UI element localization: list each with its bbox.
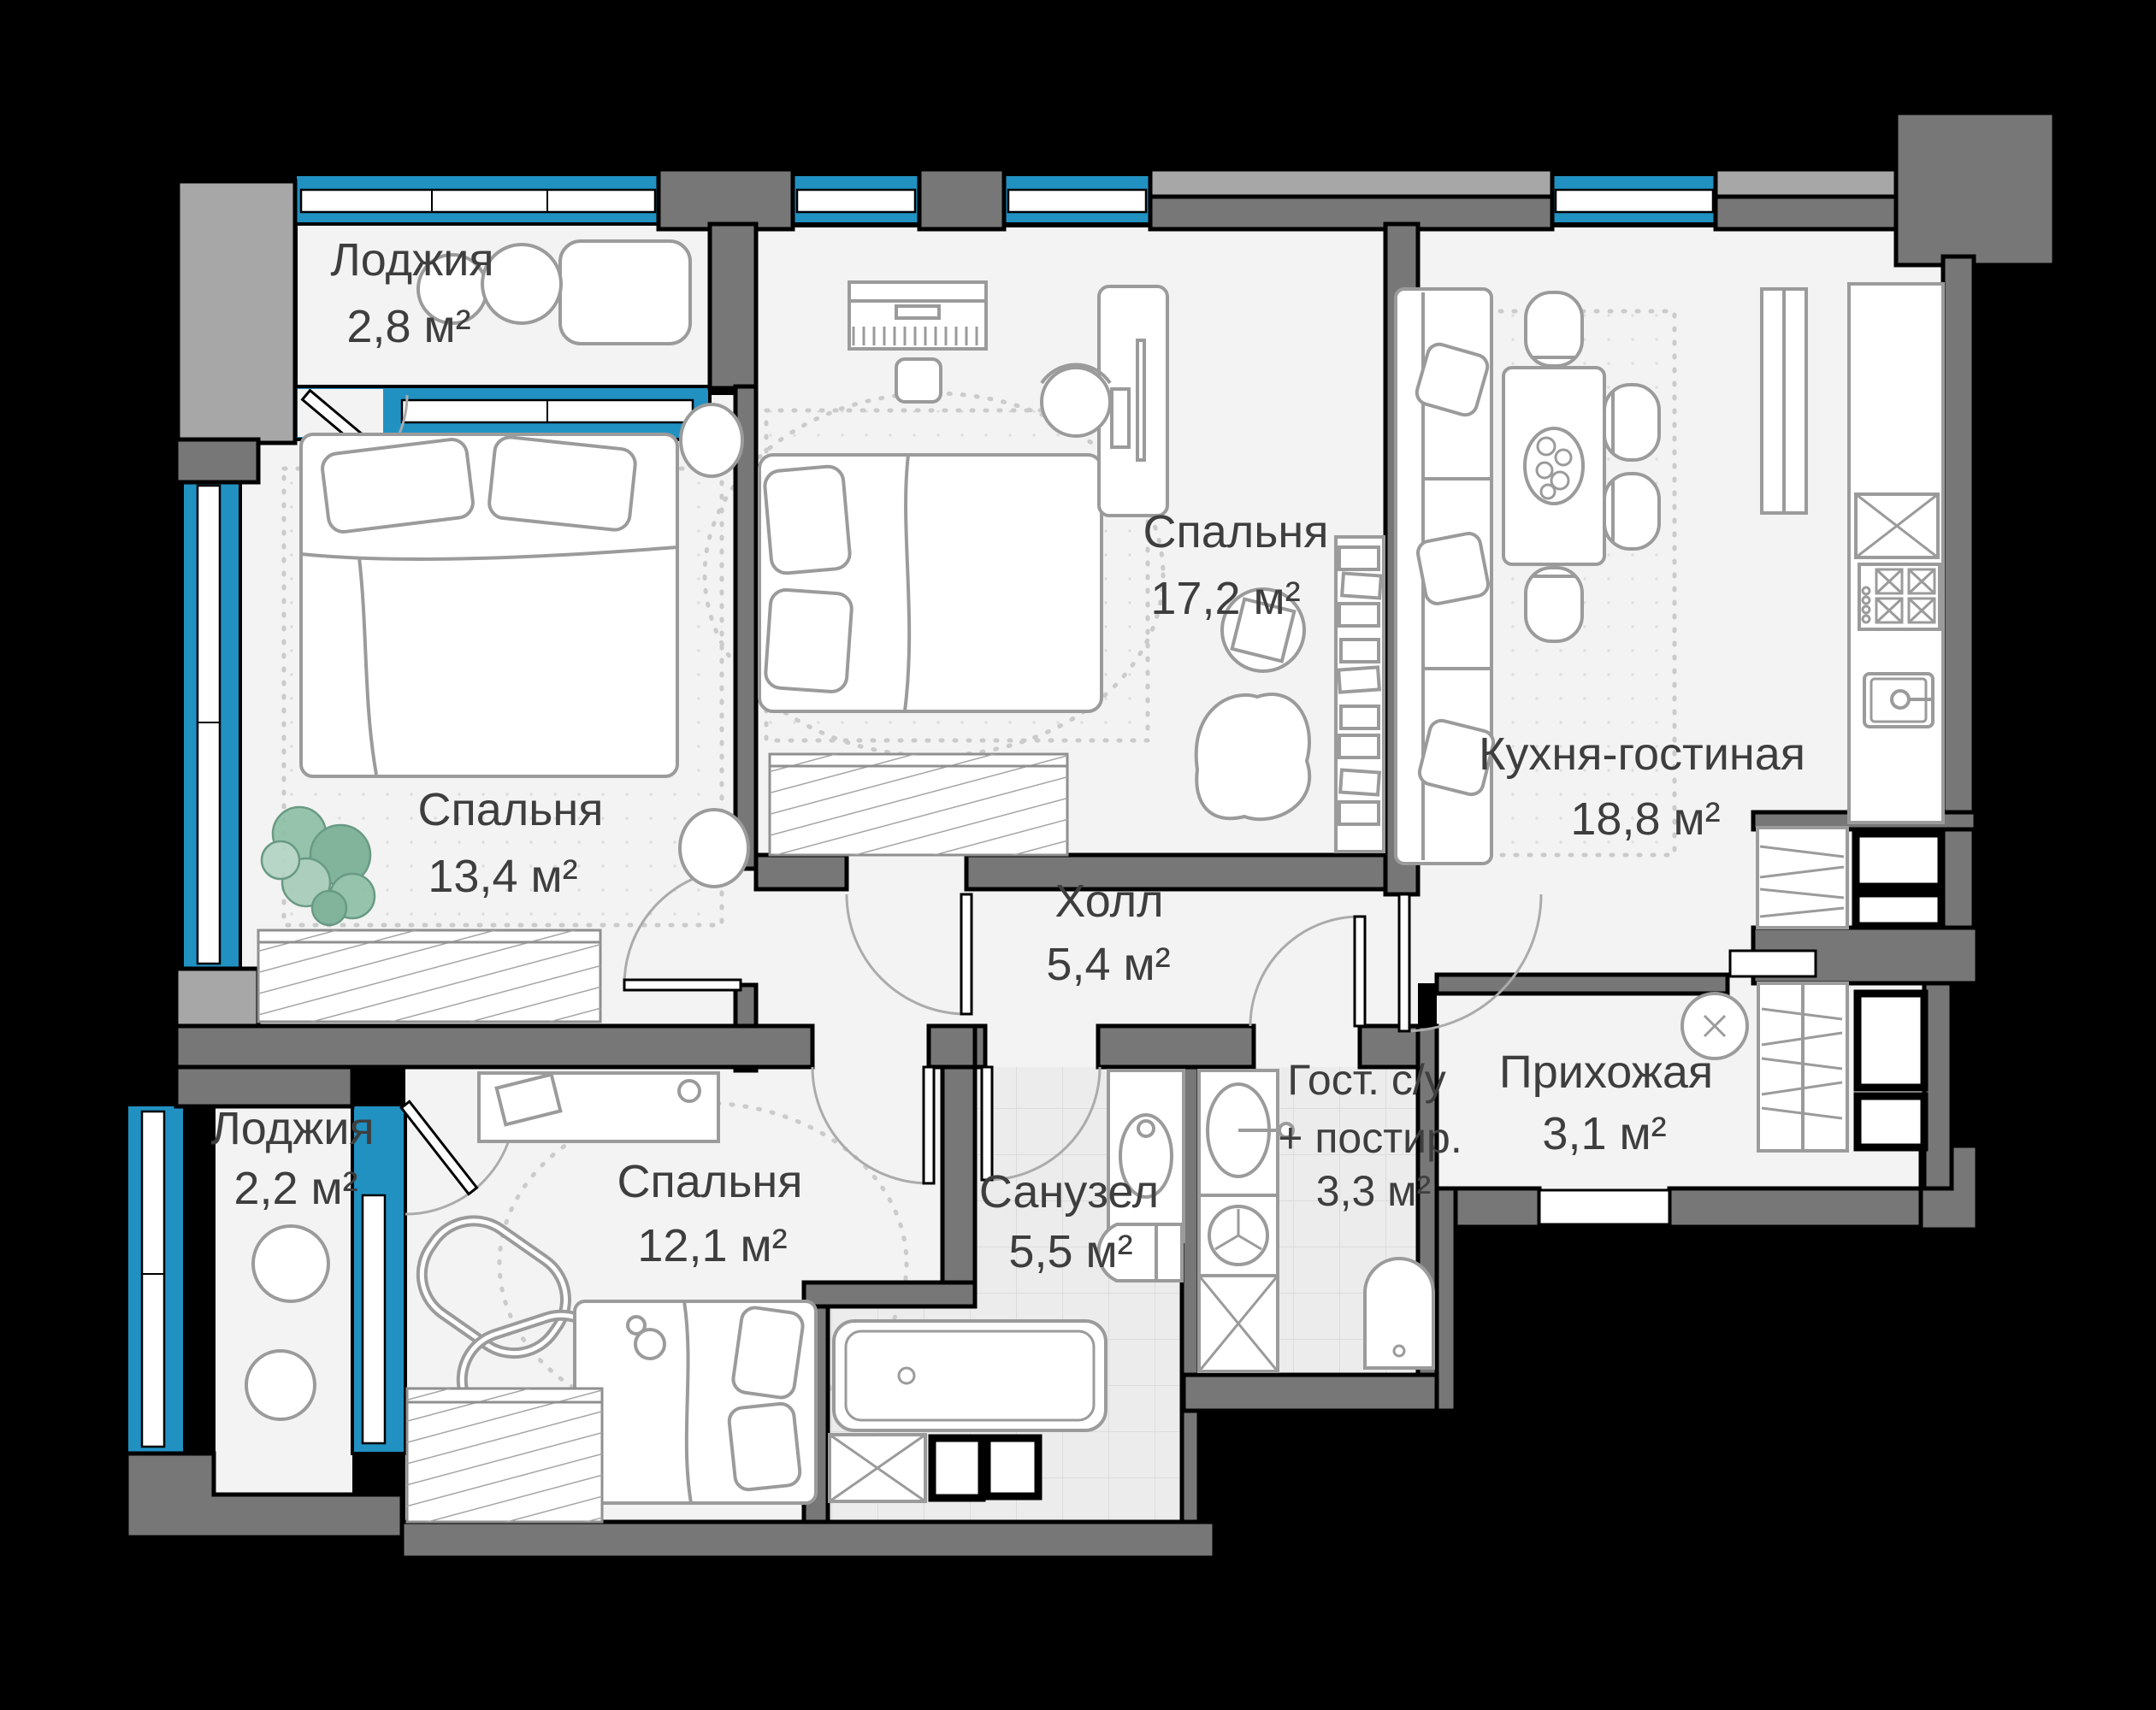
coat-closet bbox=[1758, 983, 1847, 1151]
room-label-loggia-bottom: Лоджия bbox=[210, 1103, 374, 1154]
room-area-loggia-top: 2,8 м² bbox=[346, 301, 470, 352]
kitchen-counter bbox=[1849, 284, 1943, 823]
wardrobe bbox=[770, 754, 1067, 855]
desk bbox=[479, 1073, 718, 1141]
kitchen-sink bbox=[1864, 674, 1934, 727]
room-area-bedroom-top: 17,2 м² bbox=[1150, 573, 1300, 624]
nightstand bbox=[896, 359, 941, 402]
room-area-kitchen-living: 18,8 м² bbox=[1570, 793, 1720, 845]
loggia-bench bbox=[560, 241, 690, 344]
washing-machine bbox=[1199, 1195, 1278, 1276]
room-label-bedroom-left: Спальня bbox=[418, 784, 604, 835]
bathtub bbox=[834, 1321, 1106, 1430]
bookshelf bbox=[1336, 537, 1384, 852]
shaft bbox=[1858, 1096, 1924, 1147]
door-storage bbox=[1730, 951, 1816, 976]
tall-cabinet bbox=[1762, 289, 1806, 513]
room-area-hall: 5,4 м² bbox=[1046, 939, 1170, 990]
room-label-loggia-top: Лоджия bbox=[330, 234, 493, 286]
shower-shaft bbox=[830, 1435, 1038, 1501]
room-label-hall: Холл bbox=[1054, 876, 1163, 927]
entrance-door bbox=[1539, 1190, 1669, 1224]
double-bed bbox=[759, 455, 1102, 711]
floor-plan-canvas: Лоджия 2,8 м² Спальня 13,4 м² Спальня 17… bbox=[0, 0, 2156, 1710]
floor-plan: Лоджия 2,8 м² Спальня 13,4 м² Спальня 17… bbox=[0, 0, 2156, 1710]
room-area-loggia-bottom: 2,2 м² bbox=[233, 1163, 357, 1214]
room-label-bathroom: Санузел bbox=[979, 1166, 1159, 1218]
room-label-bedroom-top: Спальня bbox=[1143, 506, 1329, 557]
loggia-chair bbox=[482, 245, 561, 323]
armchair bbox=[1196, 694, 1309, 819]
tv-dresser bbox=[849, 282, 986, 349]
toilet bbox=[1365, 1259, 1433, 1368]
office-chair bbox=[1042, 365, 1110, 436]
room-area-entry-hall: 3,1 м² bbox=[1542, 1108, 1666, 1159]
dining-table bbox=[1503, 368, 1604, 564]
single-bed bbox=[575, 1301, 816, 1503]
room-label-guest-wc-line2: + постир. bbox=[1278, 1114, 1462, 1162]
pouf bbox=[681, 404, 742, 476]
shaft bbox=[1858, 994, 1924, 1088]
wardrobe bbox=[407, 1389, 602, 1522]
loggia-table bbox=[246, 1351, 315, 1419]
shower-tray bbox=[1199, 1276, 1278, 1371]
room-area-bathroom: 5,5 м² bbox=[1008, 1226, 1132, 1277]
room-label-entry-hall: Прихожая bbox=[1499, 1047, 1713, 1098]
room-area-guest-wc: 3,3 м² bbox=[1316, 1167, 1431, 1215]
room-label-bedroom-bottom: Спальня bbox=[617, 1156, 803, 1207]
loggia-chair bbox=[253, 1226, 328, 1301]
pouf bbox=[680, 810, 748, 887]
room-label-guest-wc: Гост. с/у bbox=[1287, 1056, 1446, 1104]
stove bbox=[1859, 564, 1940, 629]
room-label-kitchen-living: Кухня-гостиная bbox=[1479, 728, 1805, 780]
room-area-bedroom-left: 13,4 м² bbox=[428, 851, 577, 902]
room-area-bedroom-bottom: 12,1 м² bbox=[637, 1220, 787, 1271]
double-bed bbox=[301, 434, 677, 776]
wardrobe bbox=[258, 930, 600, 1022]
